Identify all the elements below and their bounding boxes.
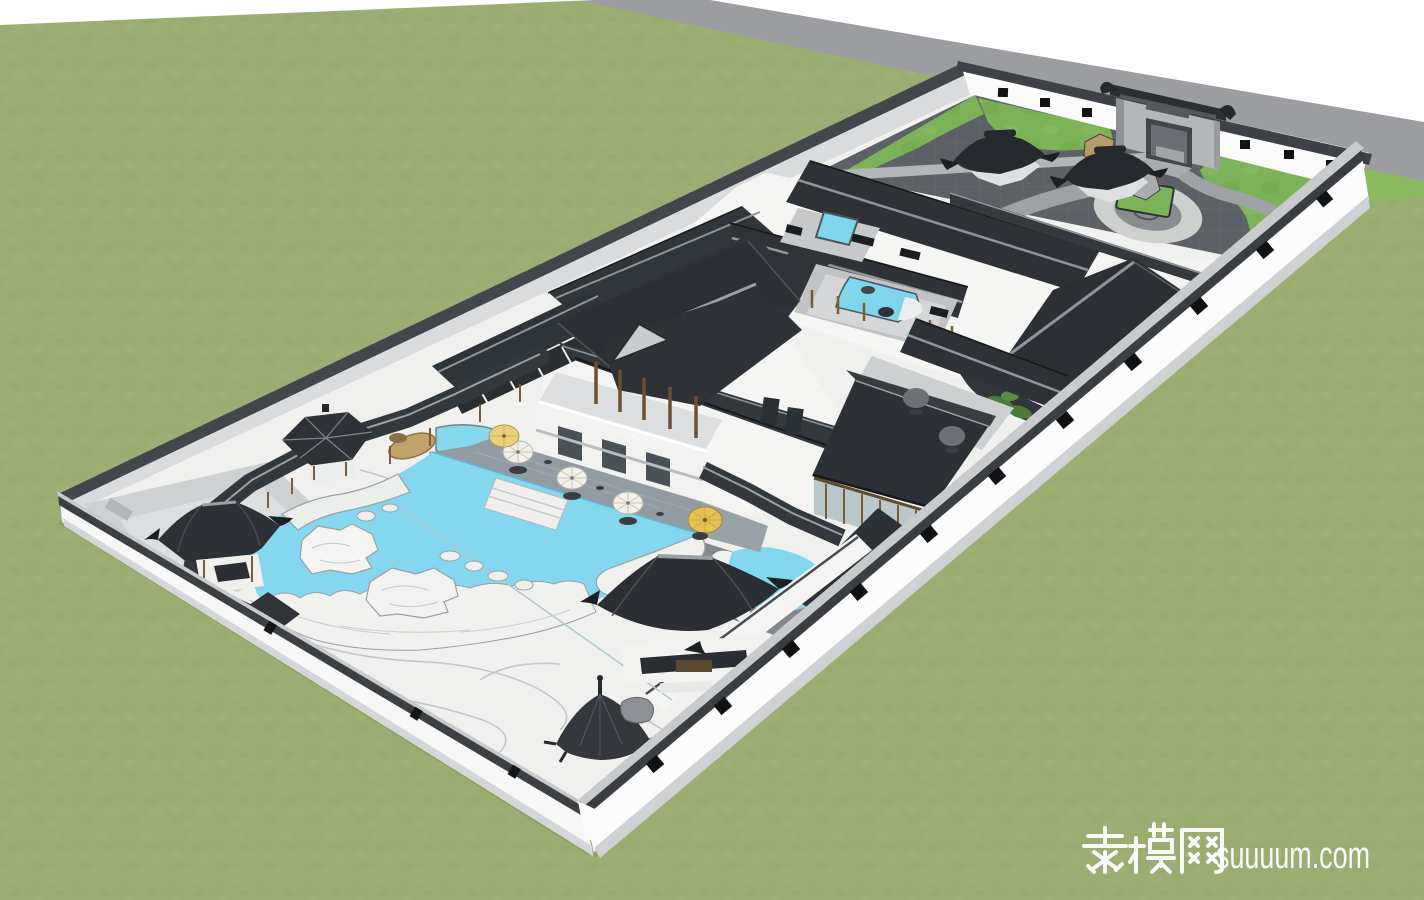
svg-text:suuuum.com: suuuum.com xyxy=(1216,835,1370,877)
